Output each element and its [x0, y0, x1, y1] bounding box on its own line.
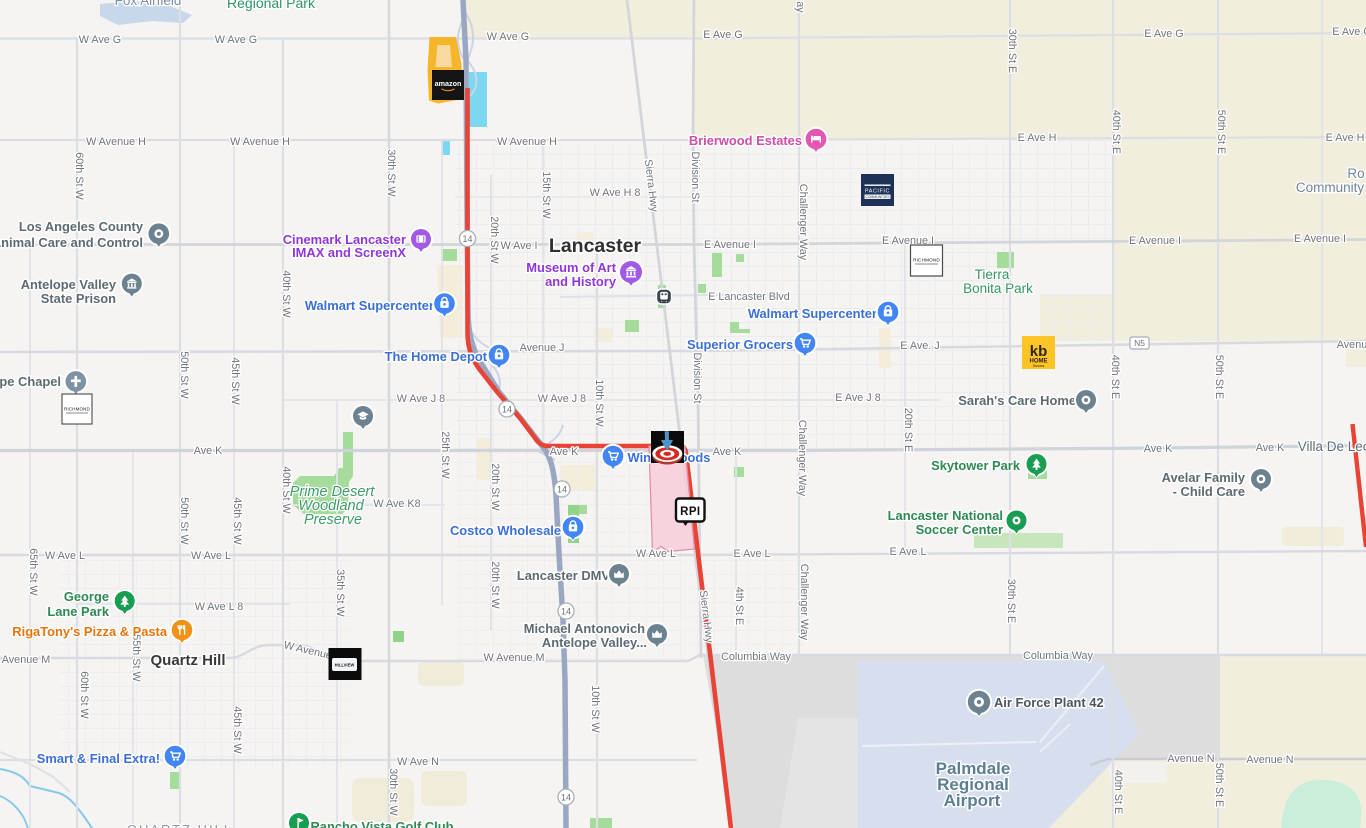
svg-text:Avenue N: Avenue N: [1246, 754, 1293, 766]
svg-text:Lancaster DMV: Lancaster DMV: [517, 568, 611, 583]
svg-text:E Avenue I: E Avenue I: [1294, 233, 1346, 245]
svg-text:W Avenue M: W Avenue M: [483, 652, 544, 664]
svg-text:Air Force Plant 42: Air Force Plant 42: [994, 695, 1104, 710]
svg-text:pe Chapel: pe Chapel: [0, 374, 61, 389]
svg-text:E Ave J 8: E Ave J 8: [835, 392, 880, 404]
svg-text:Sarah's Care Home: Sarah's Care Home: [958, 393, 1076, 408]
svg-text:50th St W: 50th St W: [178, 351, 190, 399]
svg-text:Ave K: Ave K: [194, 445, 223, 457]
svg-text:W Ave L: W Ave L: [636, 548, 676, 560]
svg-text:Ave K: Ave K: [1144, 443, 1173, 455]
svg-text:Brierwood Estates: Brierwood Estates: [689, 133, 802, 148]
svg-text:Avenue: Avenue: [1337, 339, 1366, 351]
svg-text:E Ave G: E Ave G: [703, 29, 742, 41]
svg-text:Division St: Division St: [689, 151, 701, 202]
svg-text:W Ave L 8: W Ave L 8: [195, 601, 244, 613]
svg-text:14: 14: [561, 607, 571, 617]
svg-text:30th St E: 30th St E: [1006, 29, 1018, 73]
svg-text:20th St W: 20th St W: [489, 463, 501, 511]
svg-text:N5: N5: [1134, 338, 1145, 348]
svg-text:W Avenue H: W Avenue H: [497, 136, 557, 148]
svg-text:The Home Depot: The Home Depot: [385, 349, 488, 364]
svg-text:Villa De Leo: Villa De Leo: [1298, 439, 1366, 454]
svg-text:Michael Antonovich: Michael Antonovich: [524, 621, 645, 636]
svg-text:W Ave G: W Ave G: [79, 34, 121, 46]
svg-text:State Prison: State Prison: [41, 291, 116, 306]
svg-text:Lancaster National: Lancaster National: [888, 508, 1003, 523]
svg-text:Smart & Final Extra!: Smart & Final Extra!: [37, 751, 160, 766]
svg-text:14: 14: [561, 793, 571, 803]
svg-text:amazon: amazon: [435, 79, 462, 88]
svg-text:50th St W: 50th St W: [178, 497, 190, 545]
svg-text:Superior Grocers: Superior Grocers: [687, 337, 793, 352]
svg-text:Columbia Way: Columbia Way: [721, 651, 791, 663]
svg-text:Bonita Park: Bonita Park: [963, 281, 1033, 296]
svg-text:PACIFIC: PACIFIC: [865, 189, 890, 195]
svg-text:60th St W: 60th St W: [78, 671, 90, 719]
svg-text:50th St E: 50th St E: [1213, 355, 1225, 399]
svg-text:55th St W: 55th St W: [130, 634, 142, 682]
svg-text:W Ave K8: W Ave K8: [373, 498, 420, 510]
svg-text:Preserve: Preserve: [304, 512, 362, 528]
svg-text:35th St W: 35th St W: [334, 569, 346, 617]
svg-text:Regional Park: Regional Park: [227, 0, 316, 11]
svg-text:E Ave. J: E Ave. J: [900, 340, 939, 352]
svg-text:QUARTZ HILL: QUARTZ HILL: [127, 822, 233, 828]
svg-text:25th St W: 25th St W: [439, 431, 451, 479]
svg-text:Ro: Ro: [1347, 166, 1364, 181]
svg-text:45th St W: 45th St W: [231, 706, 243, 754]
svg-text:W Ave L: W Ave L: [45, 550, 85, 562]
svg-text:E Avenue I: E Avenue I: [704, 239, 756, 251]
svg-text:W Ave G: W Ave G: [215, 34, 257, 46]
svg-text:40th St W: 40th St W: [280, 270, 292, 318]
svg-text:E Ave H: E Ave H: [1018, 132, 1057, 144]
svg-text:30th St W: 30th St W: [387, 768, 399, 816]
svg-text:Challenger Way: Challenger Way: [797, 184, 809, 261]
svg-text:kb: kb: [1030, 343, 1048, 360]
svg-text:Sonora: Sonora: [1033, 364, 1045, 368]
svg-text:Fox Airfield: Fox Airfield: [115, 0, 182, 8]
svg-text:ay: ay: [794, 1, 806, 13]
svg-text:30th St W: 30th St W: [385, 149, 397, 197]
svg-text:14: 14: [462, 234, 472, 244]
svg-text:Lane Park: Lane Park: [47, 604, 109, 619]
svg-text:Los Angeles County: Los Angeles County: [19, 219, 144, 234]
svg-text:RigaTony's Pizza & Pasta: RigaTony's Pizza & Pasta: [12, 624, 168, 639]
svg-text:Ave K: Ave K: [550, 446, 579, 458]
svg-text:15th St W: 15th St W: [540, 171, 552, 219]
svg-text:45th St W: 45th St W: [231, 497, 243, 545]
svg-text:20th St E: 20th St E: [902, 408, 914, 452]
svg-text:20th St W: 20th St W: [488, 216, 500, 264]
svg-text:Ave K: Ave K: [713, 446, 742, 458]
svg-text:4th St E: 4th St E: [733, 587, 745, 625]
svg-text:Rancho Vista Golf Club: Rancho Vista Golf Club: [310, 819, 453, 828]
svg-text:E Avenue I: E Avenue I: [1129, 235, 1181, 247]
svg-text:Soccer Center: Soccer Center: [916, 522, 1003, 537]
svg-text:14: 14: [502, 405, 512, 415]
svg-text:W Ave J 8: W Ave J 8: [397, 393, 445, 405]
svg-text:50th St E: 50th St E: [1213, 763, 1225, 807]
svg-text:40th St E: 40th St E: [1110, 110, 1122, 154]
svg-text:Avenue J: Avenue J: [520, 342, 565, 354]
svg-text:RICHMOND: RICHMOND: [64, 407, 90, 412]
svg-text:W Avenue H: W Avenue H: [230, 136, 290, 148]
svg-text:Animal Care and Control: Animal Care and Control: [0, 235, 143, 250]
svg-text:Ave K: Ave K: [1256, 442, 1285, 454]
svg-text:20th St W: 20th St W: [489, 561, 501, 609]
svg-text:Airport: Airport: [944, 791, 1001, 810]
svg-text:W Ave I: W Ave I: [500, 240, 537, 252]
svg-text:40th St E: 40th St E: [1109, 355, 1121, 399]
svg-text:Avelar Family: Avelar Family: [1162, 470, 1246, 485]
svg-text:COMMUNITIES: COMMUNITIES: [865, 195, 890, 199]
svg-text:W Ave H 8: W Ave H 8: [590, 187, 641, 199]
svg-text:E Lancaster Blvd: E Lancaster Blvd: [708, 291, 790, 303]
svg-text:Challenger Way: Challenger Way: [798, 564, 810, 641]
svg-text:Challenger Way: Challenger Way: [796, 420, 808, 497]
svg-text:W Avenue H: W Avenue H: [86, 136, 146, 148]
svg-text:E Ave L: E Ave L: [733, 548, 770, 560]
svg-text:Walmart Supercenter: Walmart Supercenter: [748, 306, 877, 321]
svg-text:E Ave L: E Ave L: [889, 546, 926, 558]
svg-text:50th St E: 50th St E: [1215, 110, 1227, 154]
svg-text:Avenue M: Avenue M: [2, 654, 50, 666]
svg-text:10th St W: 10th St W: [589, 685, 601, 733]
svg-text:E Ave H: E Ave H: [1326, 132, 1365, 144]
svg-text:60th St W: 60th St W: [73, 152, 85, 200]
svg-text:40th St E: 40th St E: [1112, 770, 1124, 814]
svg-text:E Ave G: E Ave G: [1332, 26, 1366, 38]
svg-text:30th St E: 30th St E: [1005, 579, 1017, 623]
svg-text:Antelope Valley...: Antelope Valley...: [542, 635, 647, 650]
svg-text:Avenue N: Avenue N: [1167, 753, 1214, 765]
svg-text:Antelope Valley: Antelope Valley: [21, 277, 117, 292]
svg-text:W Ave J 8: W Ave J 8: [538, 393, 586, 405]
svg-text:IMAX and ScreenX: IMAX and ScreenX: [292, 245, 406, 260]
svg-text:HILLVIEW: HILLVIEW: [335, 663, 355, 668]
svg-text:Walmart Supercenter: Walmart Supercenter: [305, 298, 434, 313]
svg-text:Museum of Art: Museum of Art: [526, 260, 616, 275]
svg-text:RPI: RPI: [680, 506, 700, 518]
svg-text:Tierra: Tierra: [975, 267, 1010, 282]
svg-text:Costco Wholesale: Costco Wholesale: [450, 523, 561, 538]
svg-text:Skytower Park: Skytower Park: [931, 458, 1021, 473]
svg-text:W Ave L: W Ave L: [191, 550, 231, 562]
svg-text:Columbia Way: Columbia Way: [1023, 650, 1093, 662]
svg-text:George: George: [64, 589, 109, 604]
svg-text:and History: and History: [545, 274, 617, 289]
svg-text:W Ave G: W Ave G: [487, 31, 529, 43]
svg-text:RICHMOND: RICHMOND: [913, 258, 940, 263]
svg-text:E Ave G: E Ave G: [1144, 28, 1183, 40]
svg-text:Division St: Division St: [691, 352, 703, 403]
svg-text:65th St W: 65th St W: [27, 548, 39, 596]
svg-text:W Ave N: W Ave N: [397, 756, 439, 768]
svg-text:Lancaster: Lancaster: [549, 235, 642, 257]
svg-text:Community: Community: [1296, 180, 1365, 195]
svg-text:14: 14: [557, 485, 567, 495]
svg-text:Quartz Hill: Quartz Hill: [150, 652, 225, 669]
svg-text:10th St W: 10th St W: [593, 379, 605, 427]
svg-text:- Child Care: - Child Care: [1173, 484, 1245, 499]
svg-text:45th St W: 45th St W: [229, 357, 241, 405]
